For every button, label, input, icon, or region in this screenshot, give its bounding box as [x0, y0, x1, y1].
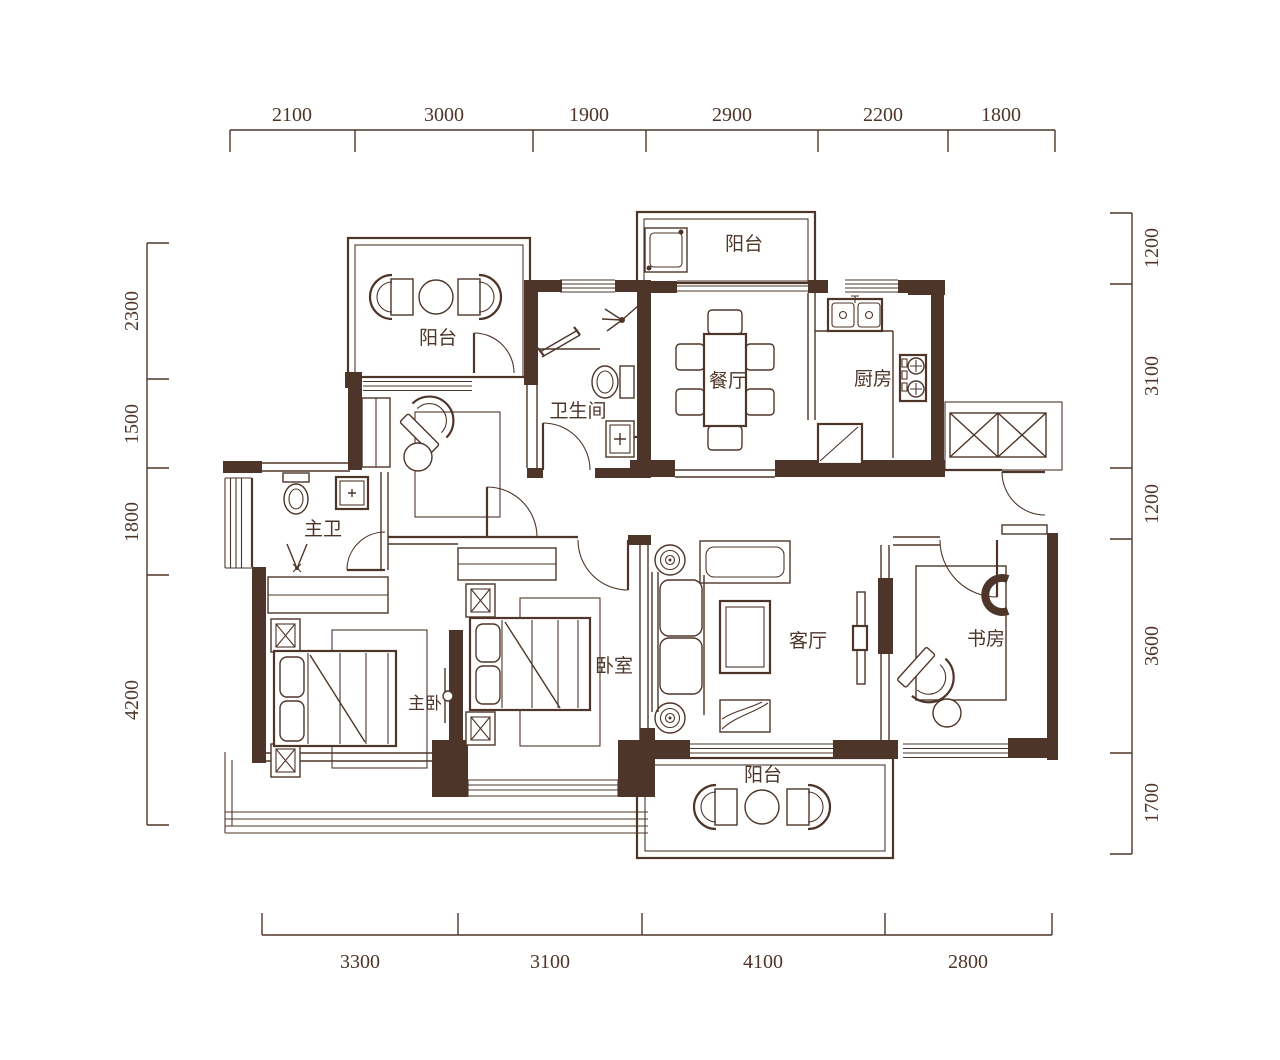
bed-master: [274, 651, 396, 746]
window-bedroom: [468, 780, 618, 796]
dim-right-4: 1700: [1141, 783, 1163, 823]
door-bathroom: [543, 423, 590, 470]
dim-right-2: 1200: [1141, 484, 1163, 524]
balcony-top-left-chairs-table: [370, 275, 501, 319]
dim-top-4: 2200: [863, 104, 903, 126]
dim-right-0: 1200: [1141, 228, 1163, 268]
room-label-living: 客厅: [789, 630, 827, 652]
dim-top-3: 2900: [712, 104, 752, 126]
dim-bottom-3: 2800: [948, 951, 988, 973]
wardrobe-master: [268, 577, 388, 613]
room-label-master-bath: 主卫: [304, 518, 342, 540]
bathroom-toilet: [592, 366, 634, 398]
dim-top-5: 1800: [981, 104, 1021, 126]
dim-left-2: 1800: [121, 502, 143, 542]
master-bath-sink: [336, 477, 368, 509]
room-label-balcony-top: 阳台: [725, 233, 763, 255]
washing-machine: [645, 228, 687, 272]
kitchen-sink: [828, 296, 882, 331]
floor-plan-drawing: 2100 3000 1900 2900 2200 1800 3300 3100 …: [0, 0, 1280, 1060]
room-label-study: 书房: [967, 628, 1005, 650]
bathroom-shower-head: [602, 306, 638, 331]
dim-left-1: 1500: [121, 404, 143, 444]
wardrobe-bedroom: [458, 548, 556, 580]
window-kitchen: [845, 280, 898, 292]
dimension-chain-left: 2300 1500 1800 4200: [121, 243, 169, 825]
floor-plan-page: 2100 3000 1900 2900 2200 1800 3300 3100 …: [0, 0, 1280, 1060]
living-room-furniture: [652, 541, 867, 733]
side-table: [404, 443, 432, 471]
dim-right-1: 3100: [1141, 356, 1163, 396]
bed-bedroom: [470, 618, 590, 710]
balcony-table: [419, 280, 453, 314]
dim-top-0: 2100: [272, 104, 312, 126]
side-table: [933, 699, 961, 727]
bathroom-shower-screen: [538, 327, 580, 357]
ac-platform: [945, 402, 1062, 470]
master-bath-toilet: [283, 473, 309, 514]
balcony-bottom-chairs-table: [694, 785, 830, 829]
dim-bottom-2: 4100: [743, 951, 783, 973]
dim-top-2: 1900: [569, 104, 609, 126]
dim-bottom-1: 3100: [530, 951, 570, 973]
door-bedroom: [578, 540, 628, 590]
room-label-master-bedroom: 主卧: [408, 694, 442, 713]
speaker: [655, 703, 685, 733]
master-bath-shower: [287, 544, 307, 572]
room-label-balcony-bottom: 阳台: [744, 764, 782, 786]
floor-mat: [720, 700, 770, 732]
room-label-bathroom: 卫生间: [549, 400, 606, 422]
bay-window-master-bath: [225, 478, 252, 568]
dimension-chain-top: 2100 3000 1900 2900 2200 1800: [230, 104, 1055, 152]
bathroom-sink: [606, 421, 641, 457]
room-label-kitchen: 厨房: [854, 368, 892, 390]
window-bathroom: [560, 280, 615, 292]
nightstand: [271, 619, 300, 652]
room-label-balcony-top-left: 阳台: [419, 327, 457, 349]
nightstand: [271, 744, 300, 777]
room-labels: 阳台 阳台 卫生间 餐厅 厨房 主卫 主卧 卧室 客厅 书房 阳台: [304, 233, 1005, 786]
sliding-door-living-balcony: [690, 744, 833, 758]
window-hall-top: [363, 377, 472, 391]
nightstand: [466, 584, 495, 617]
dimension-chain-right: 1200 3100 1200 3600 1700: [1110, 213, 1163, 854]
dim-right-3: 3600: [1141, 626, 1163, 666]
nightstand: [466, 712, 495, 745]
speaker: [655, 545, 685, 575]
cabinet-hall: [362, 398, 390, 467]
tv-console: [853, 592, 867, 684]
dim-bottom-0: 3300: [340, 951, 380, 973]
bedroom-furniture: [466, 584, 600, 746]
dimension-chain-bottom: 3300 3100 4100 2800: [262, 913, 1052, 973]
door-entry: [1002, 472, 1045, 515]
kitchen-stove: [900, 355, 926, 401]
door-master-suite: [487, 487, 537, 537]
room-label-bedroom: 卧室: [595, 655, 633, 677]
dim-top-1: 3000: [424, 104, 464, 126]
door-balcony-top-left: [474, 333, 514, 373]
balcony-table: [745, 790, 779, 824]
door-master-bath: [347, 532, 385, 570]
dressing-mirror: [443, 668, 453, 723]
kitchen-fridge: [818, 424, 862, 464]
dim-left-0: 2300: [121, 291, 143, 331]
dim-left-3: 4200: [121, 680, 143, 720]
room-label-dining: 餐厅: [709, 370, 747, 392]
window-study: [903, 744, 1008, 758]
hall-armchair: [397, 387, 500, 517]
coffee-table: [720, 601, 770, 673]
